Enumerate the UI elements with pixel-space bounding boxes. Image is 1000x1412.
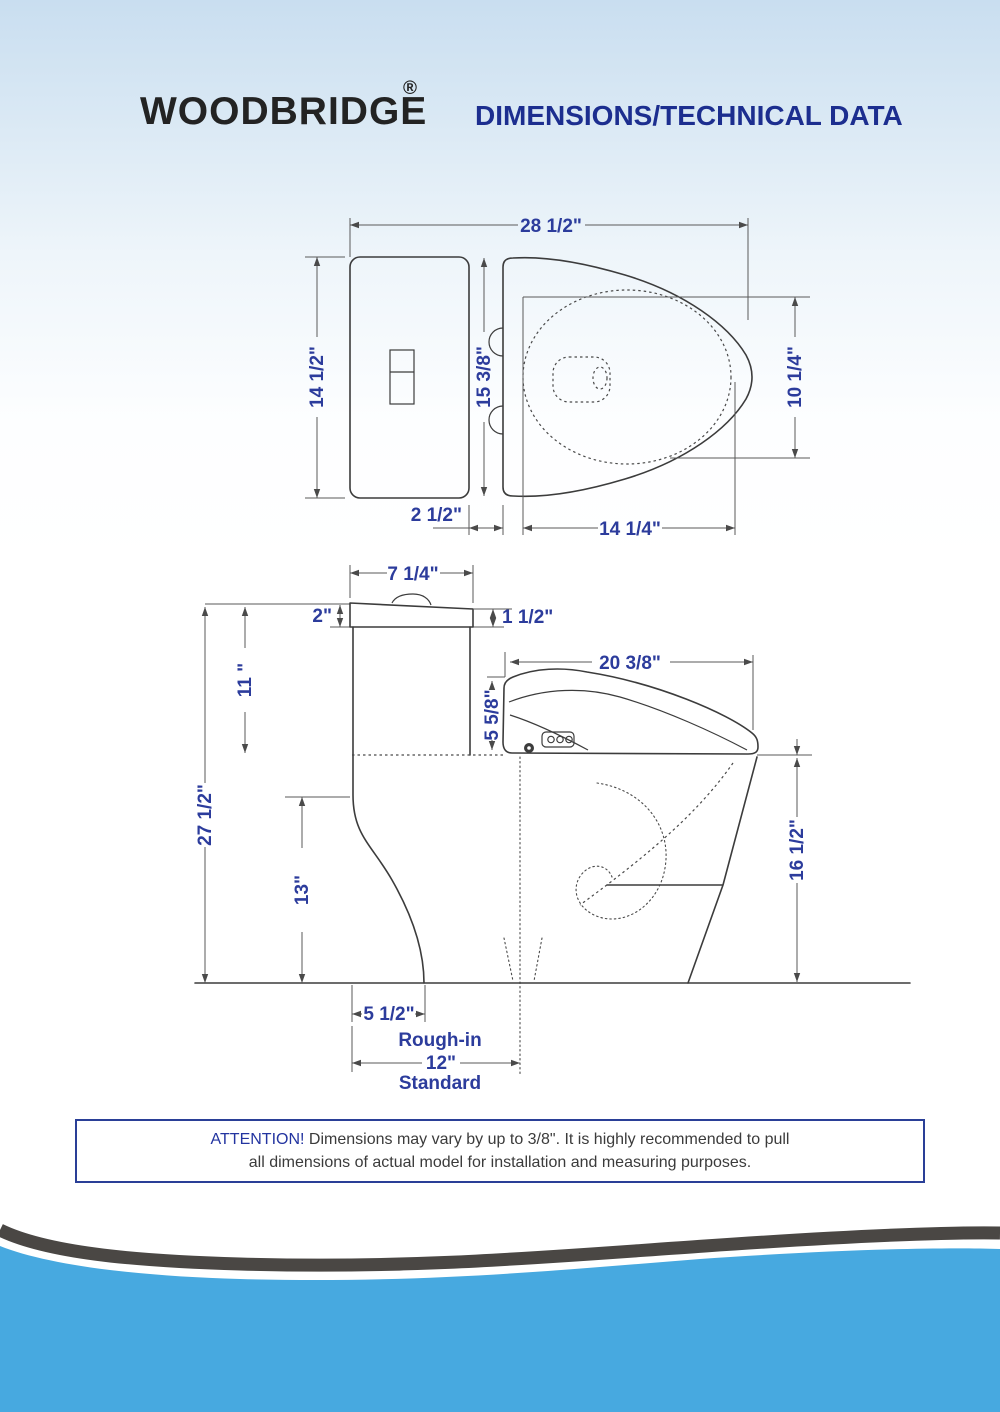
dim-tank-width: 14 1/2" — [307, 346, 328, 408]
wave-blue-fill — [0, 1246, 1000, 1412]
seat-inner-edge — [523, 290, 731, 464]
attention-line2: all dimensions of actual model for insta… — [77, 1151, 923, 1174]
dim-tank-lid-depth: 7 1/4" — [387, 564, 438, 585]
top-view-drawing — [350, 257, 752, 498]
dim-bowl-inner-length: 14 1/4" — [599, 519, 661, 540]
hinge-bump — [489, 406, 503, 434]
side-view-dimensions: 7 1/4" 2" 1 1/2" 11 " 27 1/2" 13" 20 3/8… — [195, 564, 812, 1094]
seat-lid-outline — [503, 258, 752, 497]
attention-box: ATTENTION! Dimensions may vary by up to … — [75, 1119, 925, 1183]
tank-outline-top — [350, 257, 469, 498]
water-surface — [553, 357, 610, 402]
attention-highlight: ATTENTION! — [211, 1131, 305, 1148]
brand-logo: WOODBRIDGE — [140, 90, 427, 134]
dim-lid-front-height: 1 1/2" — [502, 607, 553, 628]
dim-overall-length: 28 1/2" — [520, 216, 582, 237]
dim-bowl-side-height: 13" — [292, 875, 313, 905]
rough-in-label: Rough-in — [398, 1030, 481, 1051]
dim-overall-height: 27 1/2" — [195, 784, 216, 846]
dim-base-offset: 5 1/2" — [363, 1004, 414, 1025]
bowl-front — [607, 757, 757, 983]
attention-line1: ATTENTION! Dimensions may vary by up to … — [77, 1128, 923, 1151]
dim-bowl-inner-width: 10 1/4" — [785, 346, 806, 408]
dim-seat-lid-length: 15 3/8" — [474, 346, 495, 408]
registered-trademark-icon: ® — [403, 78, 417, 100]
rough-in-value: 12" — [426, 1053, 456, 1074]
flush-button — [390, 350, 414, 404]
page-title: DIMENSIONS/TECHNICAL DATA — [475, 100, 903, 132]
dim-seat-height: 5 5/8" — [482, 689, 503, 740]
dim-tank-seat-gap: 2 1/2" — [411, 505, 462, 526]
footer-wave-decoration — [0, 1200, 1000, 1412]
lid-knob — [392, 594, 431, 605]
drain-outlet — [504, 938, 542, 981]
dim-tank-height: 11 " — [235, 663, 256, 697]
dim-lid-back-height: 2" — [312, 606, 332, 627]
bidet-seat-side — [503, 669, 758, 754]
technical-drawing: 28 1/2" 14 1/2" 15 3/8" 10 1/4" 2 1/2" 1… — [0, 190, 1000, 1110]
tank-lid-side — [350, 603, 473, 627]
rough-in-note: Standard — [399, 1073, 481, 1094]
tank-body-side — [353, 627, 424, 983]
dim-seat-length: 20 3/8" — [599, 653, 661, 674]
dim-rim-height: 16 1/2" — [787, 819, 808, 881]
top-view-dimensions: 28 1/2" 14 1/2" 15 3/8" 10 1/4" 2 1/2" 1… — [305, 216, 810, 540]
jet-outline — [593, 367, 607, 389]
spec-sheet-page: { "header": { "brand": "WOODBRIDGE", "re… — [0, 0, 1000, 1412]
